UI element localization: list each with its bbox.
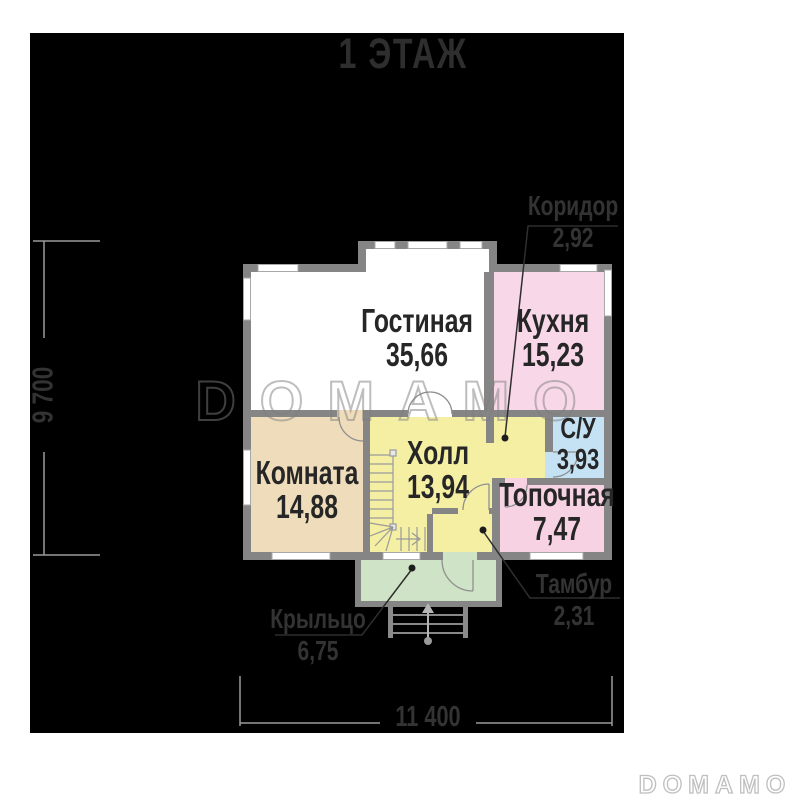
hall-area: 13,94: [407, 470, 469, 504]
corridor-name: Коридор: [528, 190, 618, 222]
callout-tambour: Тамбур 2,31: [536, 568, 612, 632]
kitchen-area: 15,23: [517, 338, 589, 372]
wall-porch-right: [496, 552, 502, 607]
boiler-area: 7,47: [499, 512, 615, 546]
porch-name: Крыльцо: [270, 603, 366, 635]
hall-name: Холл: [407, 436, 469, 470]
window-kitchen-top: [560, 265, 597, 272]
tambour-name: Тамбур: [536, 568, 612, 600]
stair-newel-top: [390, 450, 396, 456]
callout-porch: Крыльцо 6,75: [270, 603, 366, 667]
window-bottom-3: [530, 553, 583, 560]
living-name: Гостиная: [361, 304, 473, 338]
tambour-area: 2,31: [536, 600, 612, 632]
living-bump-fill: [366, 249, 489, 272]
watermark-center: DOMAMO: [195, 368, 600, 433]
floor-plan-page: 1 ЭТАЖ Гостиная 35,66 Кухня 15,23 Комнат…: [0, 0, 800, 800]
room-label-living: Гостиная 35,66: [361, 304, 473, 372]
window-bump-3: [460, 242, 482, 249]
steps-rail-left: [388, 607, 393, 638]
steps-rail-right: [463, 607, 468, 638]
leader-corridor-dot: [502, 435, 509, 442]
wc-area: 3,93: [557, 445, 599, 476]
opening-porch-door: [443, 552, 477, 560]
callout-corridor: Коридор 2,92: [528, 190, 618, 254]
window-bottom-2: [383, 553, 420, 560]
room-label-hall: Холл 13,94: [407, 436, 469, 504]
wall-tambour-left: [427, 514, 433, 552]
leader-porch-dot: [409, 565, 416, 572]
window-left-2: [244, 450, 251, 505]
boiler-name: Топочная: [499, 478, 615, 512]
floor-title: 1 ЭТАЖ: [339, 30, 468, 79]
living-area: 35,66: [361, 338, 473, 372]
room-name: Комната: [256, 456, 359, 490]
watermark-footer: DOMAMO: [639, 771, 792, 800]
corridor-area: 2,92: [528, 222, 618, 254]
room-label-boiler: Топочная 7,47: [499, 478, 615, 546]
room-label-room: Комната 14,88: [256, 456, 359, 524]
window-bump-1: [375, 242, 395, 249]
leader-tambour-dot: [480, 527, 487, 534]
room-area: 14,88: [256, 490, 359, 524]
kitchen-name: Кухня: [517, 304, 589, 338]
window-bottom-1: [272, 553, 330, 560]
window-left-1: [244, 278, 251, 320]
entrance-steps: [388, 603, 468, 645]
wall-room-hall: [363, 417, 370, 552]
steps-arrow-dot: [424, 637, 432, 645]
dimension-height-label: 9 700: [28, 367, 61, 424]
room-label-kitchen: Кухня 15,23: [517, 304, 589, 372]
opening-wc: [545, 452, 553, 478]
dimension-width-label: 11 400: [395, 702, 460, 732]
porch-area: 6,75: [270, 635, 366, 667]
window-bump-2: [408, 242, 447, 249]
porch-fill: [361, 556, 496, 603]
window-right: [605, 270, 612, 316]
wall-porch-left: [355, 552, 361, 607]
window-top-left: [258, 265, 298, 272]
